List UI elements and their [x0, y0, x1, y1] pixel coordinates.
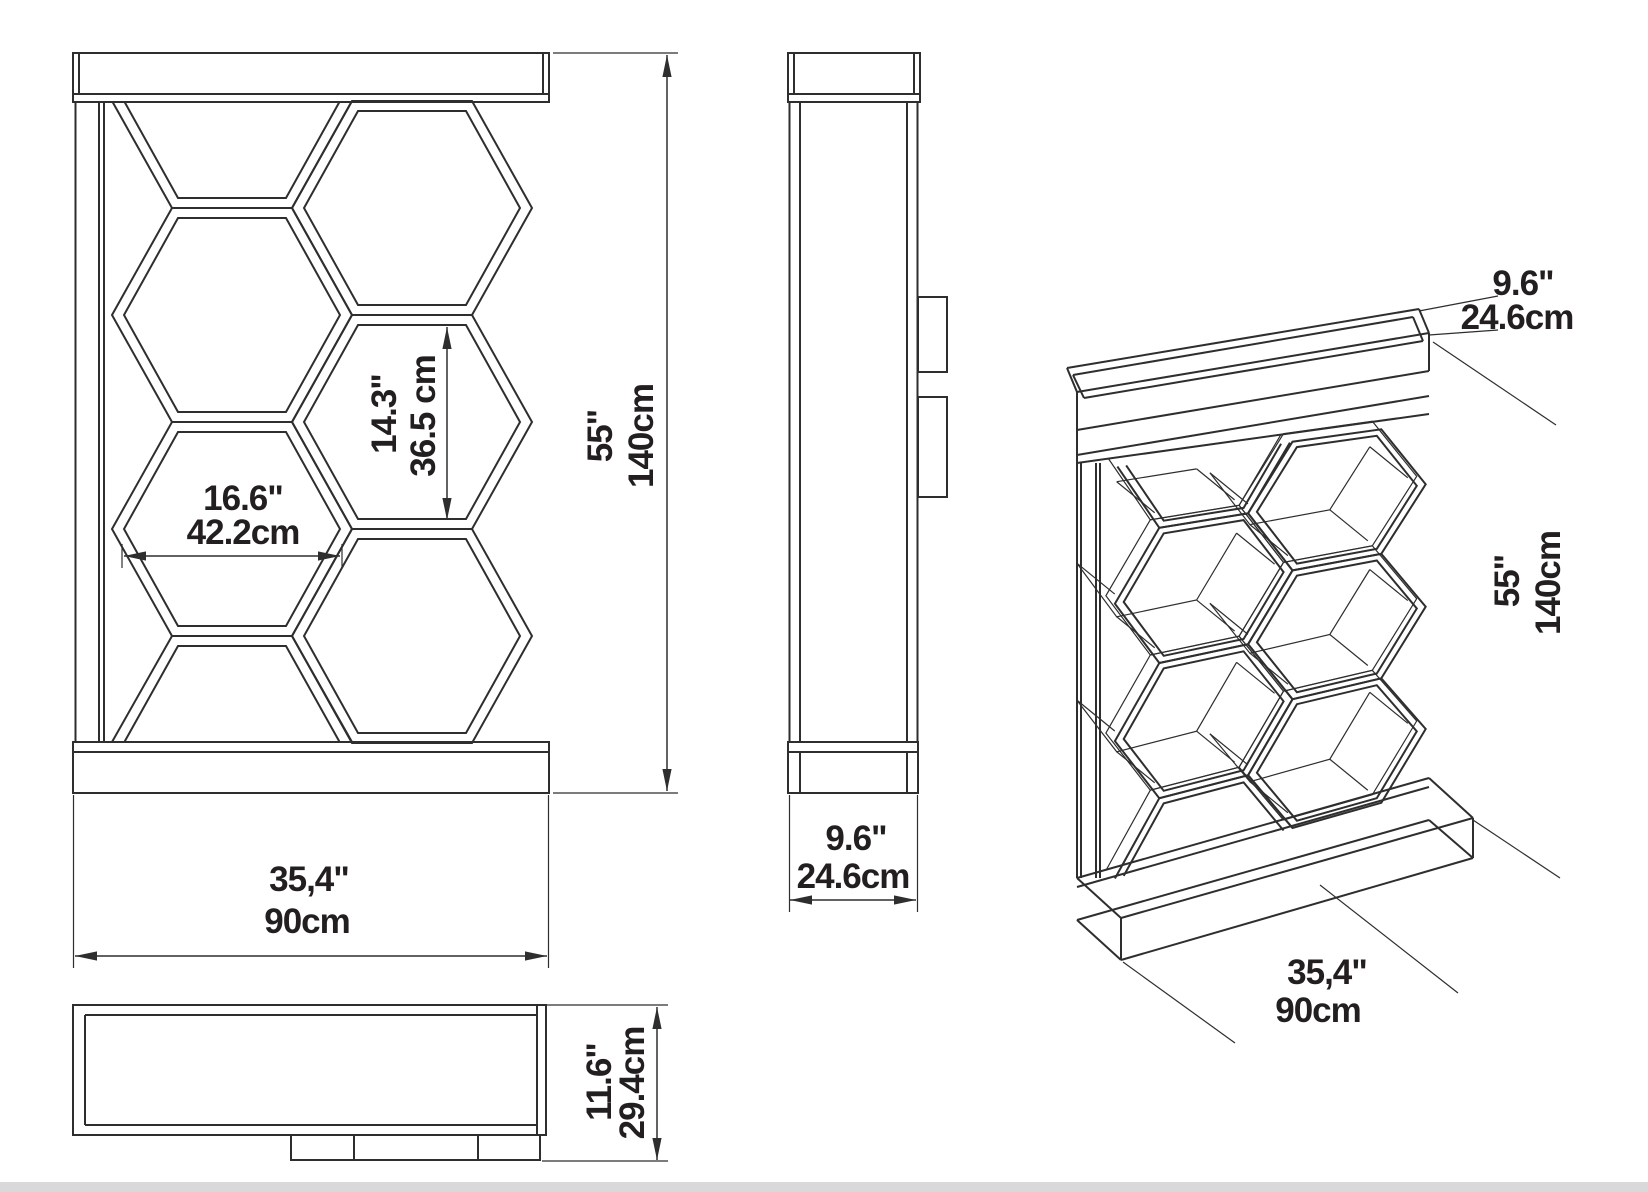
- side-depth-label-cm: 24.6cm: [797, 857, 910, 896]
- front-width-label-inches: 35,4": [269, 860, 349, 899]
- top-depth-label-cm: 29.4cm: [613, 1027, 652, 1140]
- front-cell-width-label-cm: 42.2cm: [187, 513, 300, 552]
- iso-width-label-inches: 35,4": [1287, 953, 1367, 992]
- iso-height-label-cm: 140cm: [1529, 531, 1568, 635]
- technical-drawing: 16.6" 42.2cm 14.3" 36.5 cm 55" 140cm 35,…: [0, 0, 1648, 1192]
- front-cell-height-label-cm: 36.5 cm: [404, 355, 443, 476]
- front-width-label-cm: 90cm: [264, 902, 350, 941]
- bottom-strip: [0, 1182, 1648, 1192]
- front-cell-height-label-inches: 14.3": [365, 374, 404, 454]
- iso-height-label-inches: 55": [1488, 555, 1527, 608]
- front-height-label-inches: 55": [581, 410, 620, 463]
- iso-tray-depth-label-cm: 24.6cm: [1461, 298, 1574, 337]
- iso-width-label-cm: 90cm: [1275, 991, 1361, 1030]
- drawing-canvas: 16.6" 42.2cm 14.3" 36.5 cm 55" 140cm 35,…: [0, 0, 1648, 1192]
- background: [0, 0, 1648, 1192]
- front-height-label-cm: 140cm: [622, 384, 661, 488]
- side-depth-label-inches: 9.6": [825, 819, 886, 858]
